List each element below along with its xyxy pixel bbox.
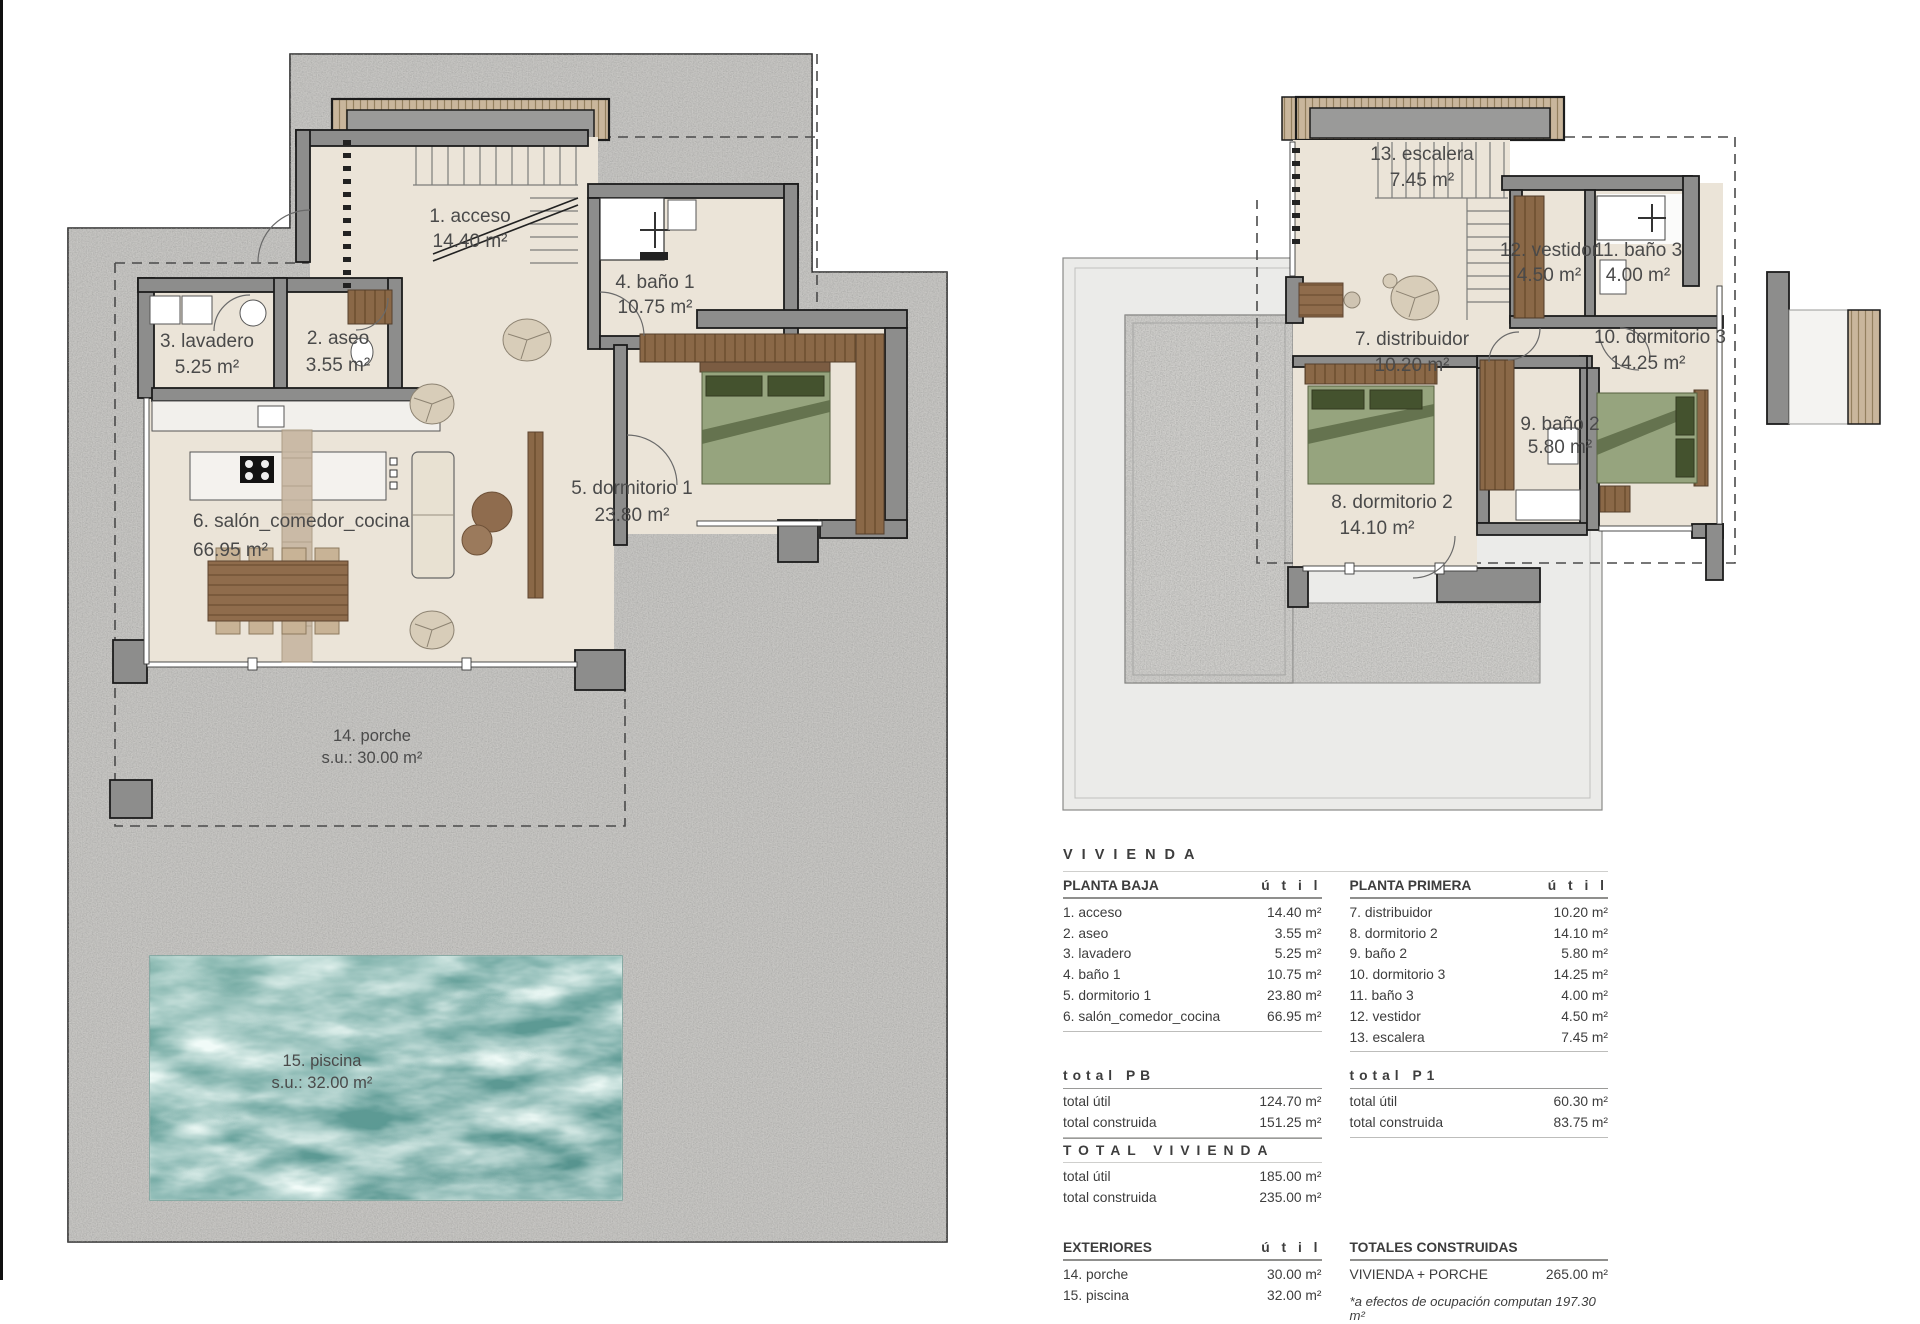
- label-dormitorio1-area: 23.80 m²: [595, 505, 670, 526]
- dryer: [182, 296, 212, 324]
- desk: [1299, 283, 1343, 317]
- label-vestidor: 12. vestidor: [1500, 240, 1599, 261]
- label-aseo-area: 3.55 m²: [306, 355, 370, 376]
- basin: [240, 300, 266, 326]
- balcony-right: [1789, 310, 1880, 424]
- total-p1-header: total P1: [1350, 1064, 1609, 1088]
- table-row: 11. baño 34.00 m²: [1350, 985, 1609, 1006]
- table-title: VIVIENDA: [1063, 848, 1608, 872]
- kitchen-sink: [258, 406, 284, 427]
- vanity-bano2: [1516, 490, 1580, 520]
- total-pb-header: total PB: [1063, 1064, 1322, 1088]
- pb-util-header: ú t i l: [1261, 878, 1321, 893]
- pergola-p1: [1282, 97, 1564, 140]
- table-row: 13. escalera7.45 m²: [1350, 1027, 1609, 1048]
- bed-dormitorio2: [1305, 364, 1437, 484]
- label-piscina-area: s.u.: 32.00 m²: [272, 1074, 373, 1092]
- plan-planta-primera: 13. escalera 7.45 m² 12. vestidor 4.50 m…: [1063, 97, 1880, 810]
- label-dormitorio1: 5. dormitorio 1: [571, 478, 692, 499]
- table-row: 10. dormitorio 314.25 m²: [1350, 964, 1609, 985]
- table-row: 14. porche30.00 m²: [1063, 1264, 1322, 1285]
- label-piscina: 15. piscina: [283, 1052, 363, 1070]
- label-aseo: 2. aseo: [307, 328, 369, 349]
- kitchen-counter: [152, 401, 440, 431]
- floor-plans-drawing: 1. acceso 14.40 m² 4. baño 1 10.75 m² 3.…: [0, 0, 1920, 1280]
- table-row: 3. lavadero5.25 m²: [1063, 944, 1322, 965]
- table-row: 5. dormitorio 123.80 m²: [1063, 985, 1322, 1006]
- label-lavadero-area: 5.25 m²: [175, 357, 239, 378]
- sideboard: [528, 432, 543, 598]
- label-distribuidor: 7. distribuidor: [1355, 329, 1470, 350]
- label-bano2: 9. baño 2: [1520, 414, 1599, 435]
- label-dormitorio3-area: 14.25 m²: [1611, 353, 1686, 374]
- label-salon-area: 66.95 m²: [193, 540, 268, 561]
- label-salon: 6. salón_comedor_cocina: [193, 511, 410, 532]
- table-row: total útil185.00 m²: [1063, 1166, 1322, 1187]
- table-row: total útil60.30 m²: [1350, 1092, 1609, 1113]
- column-totales-construidas: TOTALES CONSTRUIDAS VIVIENDA + PORCHE265…: [1350, 1234, 1609, 1324]
- table-row: 6. salón_comedor_cocina66.95 m²: [1063, 1006, 1322, 1027]
- p1-util-header: ú t i l: [1548, 878, 1608, 893]
- total-vivienda-header: TOTAL VIVIENDA: [1063, 1138, 1322, 1163]
- label-bano3: 11. baño 3: [1594, 240, 1682, 261]
- table-row: total construida151.25 m²: [1063, 1112, 1322, 1133]
- column-planta-baja: PLANTA BAJA ú t i l 1. acceso14.40 m² 2.…: [1063, 872, 1322, 1032]
- wardrobe-bano2: [1480, 360, 1514, 490]
- pool: [150, 956, 622, 1200]
- label-dormitorio3: 10. dormitorio 3: [1594, 327, 1726, 348]
- washer: [150, 296, 180, 324]
- p1-header: PLANTA PRIMERA: [1350, 878, 1472, 893]
- label-vestidor-area: 4.50 m²: [1517, 265, 1581, 286]
- wardrobe-dormitorio1: [640, 334, 856, 362]
- table-row: 9. baño 25.80 m²: [1350, 944, 1609, 965]
- occupancy-note: *a efectos de ocupación computan 197.30 …: [1350, 1295, 1609, 1324]
- label-porche: 14. porche: [333, 727, 411, 745]
- label-porche-area: s.u.: 30.00 m²: [322, 749, 423, 767]
- label-acceso: 1. acceso: [429, 206, 510, 227]
- plan-planta-baja: 1. acceso 14.40 m² 4. baño 1 10.75 m² 3.…: [68, 54, 947, 1242]
- deck-band: [856, 334, 884, 534]
- label-bano1-area: 10.75 m²: [618, 297, 693, 318]
- areas-summary-table: VIVIENDA PLANTA BAJA ú t i l 1. acceso14…: [1063, 848, 1608, 1324]
- exteriores-util-header: ú t i l: [1261, 1240, 1321, 1255]
- table-row: 8. dormitorio 214.10 m²: [1350, 923, 1609, 944]
- pb-header: PLANTA BAJA: [1063, 878, 1159, 893]
- label-bano2-area: 5.80 m²: [1528, 437, 1592, 458]
- pouf: [462, 525, 492, 555]
- cooktop: [240, 456, 274, 483]
- label-escalera-area: 7.45 m²: [1390, 170, 1454, 191]
- label-lavadero: 3. lavadero: [160, 331, 254, 352]
- column-total-pb: total PB total útil124.70 m² total const…: [1063, 1064, 1322, 1207]
- table-row: VIVIENDA + PORCHE265.00 m²: [1350, 1264, 1609, 1285]
- bench: [640, 252, 668, 260]
- desk-chair: [1344, 292, 1360, 308]
- table-row: total construida83.75 m²: [1350, 1112, 1609, 1133]
- table-row: 1. acceso14.40 m²: [1063, 902, 1322, 923]
- totales-construidas-header: TOTALES CONSTRUIDAS: [1350, 1240, 1518, 1255]
- vanity-bano1: [668, 200, 696, 230]
- column-exteriores: EXTERIORES ú t i l 14. porche30.00 m² 15…: [1063, 1234, 1322, 1306]
- table-row: 2. aseo3.55 m²: [1063, 923, 1322, 944]
- table-row: 15. piscina32.00 m²: [1063, 1285, 1322, 1306]
- label-bano1: 4. baño 1: [615, 272, 694, 293]
- label-acceso-area: 14.40 m²: [433, 231, 508, 252]
- label-distribuidor-area: 10.20 m²: [1375, 355, 1450, 376]
- column-total-p1: total P1 total útil60.30 m² total constr…: [1350, 1064, 1609, 1138]
- entry-closet: [348, 290, 392, 324]
- table-row: 7. distribuidor10.20 m²: [1350, 902, 1609, 923]
- label-bano3-area: 4.00 m²: [1606, 265, 1670, 286]
- label-dormitorio2: 8. dormitorio 2: [1331, 492, 1452, 513]
- column-planta-primera: PLANTA PRIMERA ú t i l 7. distribuidor10…: [1350, 872, 1609, 1053]
- table-row: total útil124.70 m²: [1063, 1092, 1322, 1113]
- table-row: 4. baño 110.75 m²: [1063, 964, 1322, 985]
- bed-dormitorio1: [700, 360, 830, 484]
- label-dormitorio2-area: 14.10 m²: [1340, 518, 1415, 539]
- table-row: 12. vestidor4.50 m²: [1350, 1006, 1609, 1027]
- label-escalera: 13. escalera: [1370, 144, 1474, 165]
- table-row: total construida235.00 m²: [1063, 1187, 1322, 1208]
- exteriores-header: EXTERIORES: [1063, 1240, 1152, 1255]
